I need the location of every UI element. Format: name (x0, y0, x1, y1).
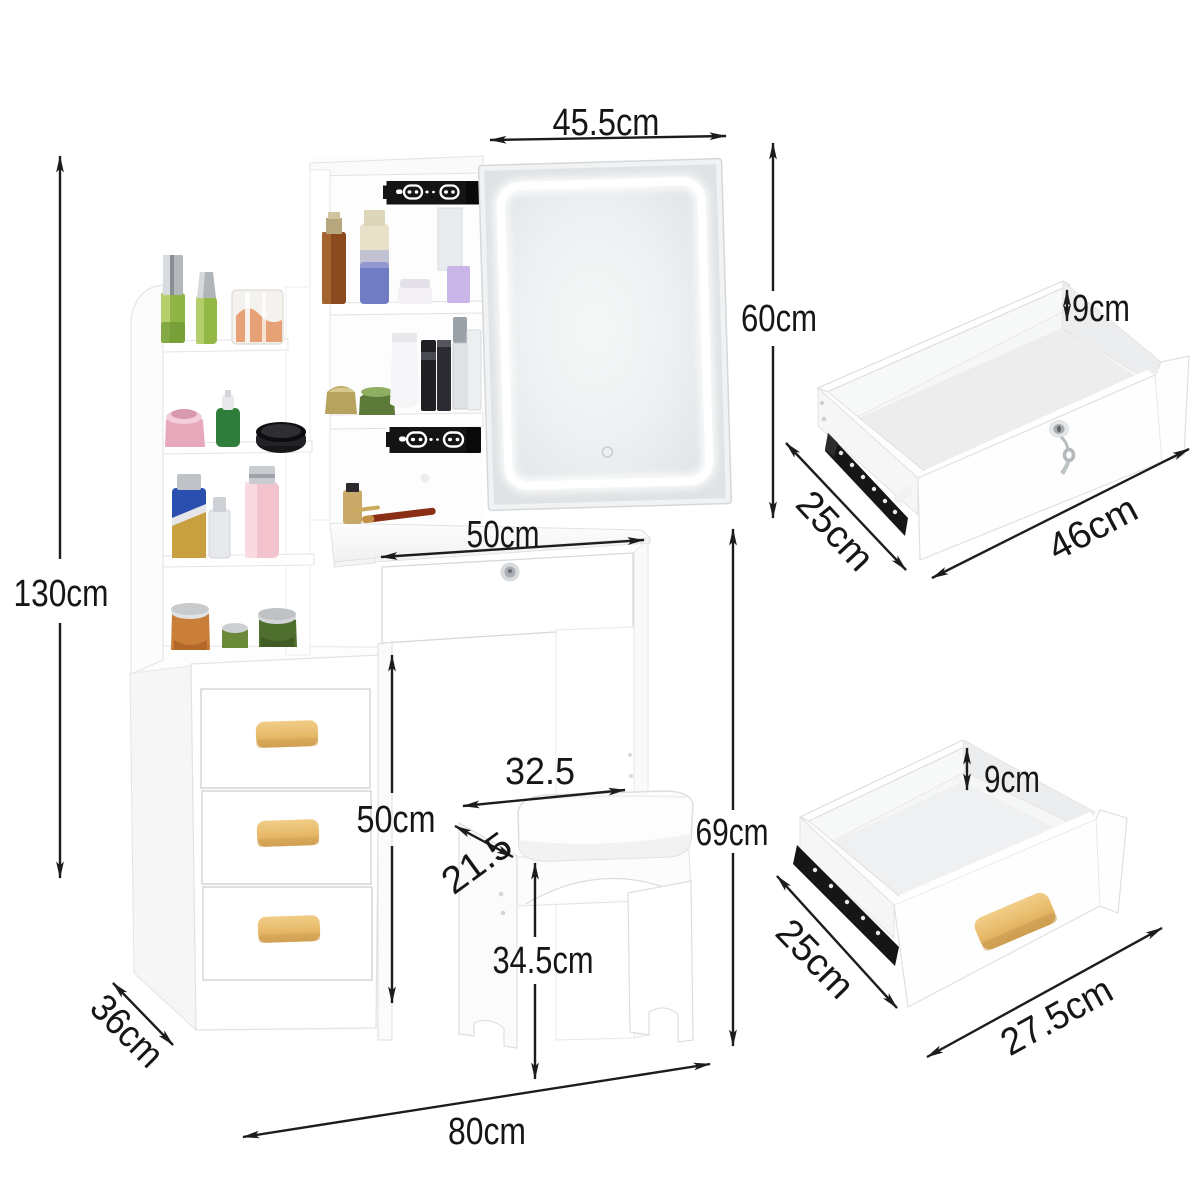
svg-text:9cm: 9cm (1072, 288, 1130, 330)
svg-text:130cm: 130cm (14, 573, 109, 615)
svg-text:34.5cm: 34.5cm (493, 940, 594, 982)
svg-text:45.5cm: 45.5cm (553, 102, 660, 144)
svg-text:60cm: 60cm (741, 298, 817, 340)
svg-text:32.5: 32.5 (505, 751, 575, 793)
svg-text:50cm: 50cm (467, 514, 540, 556)
svg-text:9cm: 9cm (984, 759, 1040, 801)
svg-text:50cm: 50cm (357, 799, 436, 841)
svg-text:80cm: 80cm (448, 1111, 526, 1153)
svg-text:69cm: 69cm (696, 812, 769, 854)
